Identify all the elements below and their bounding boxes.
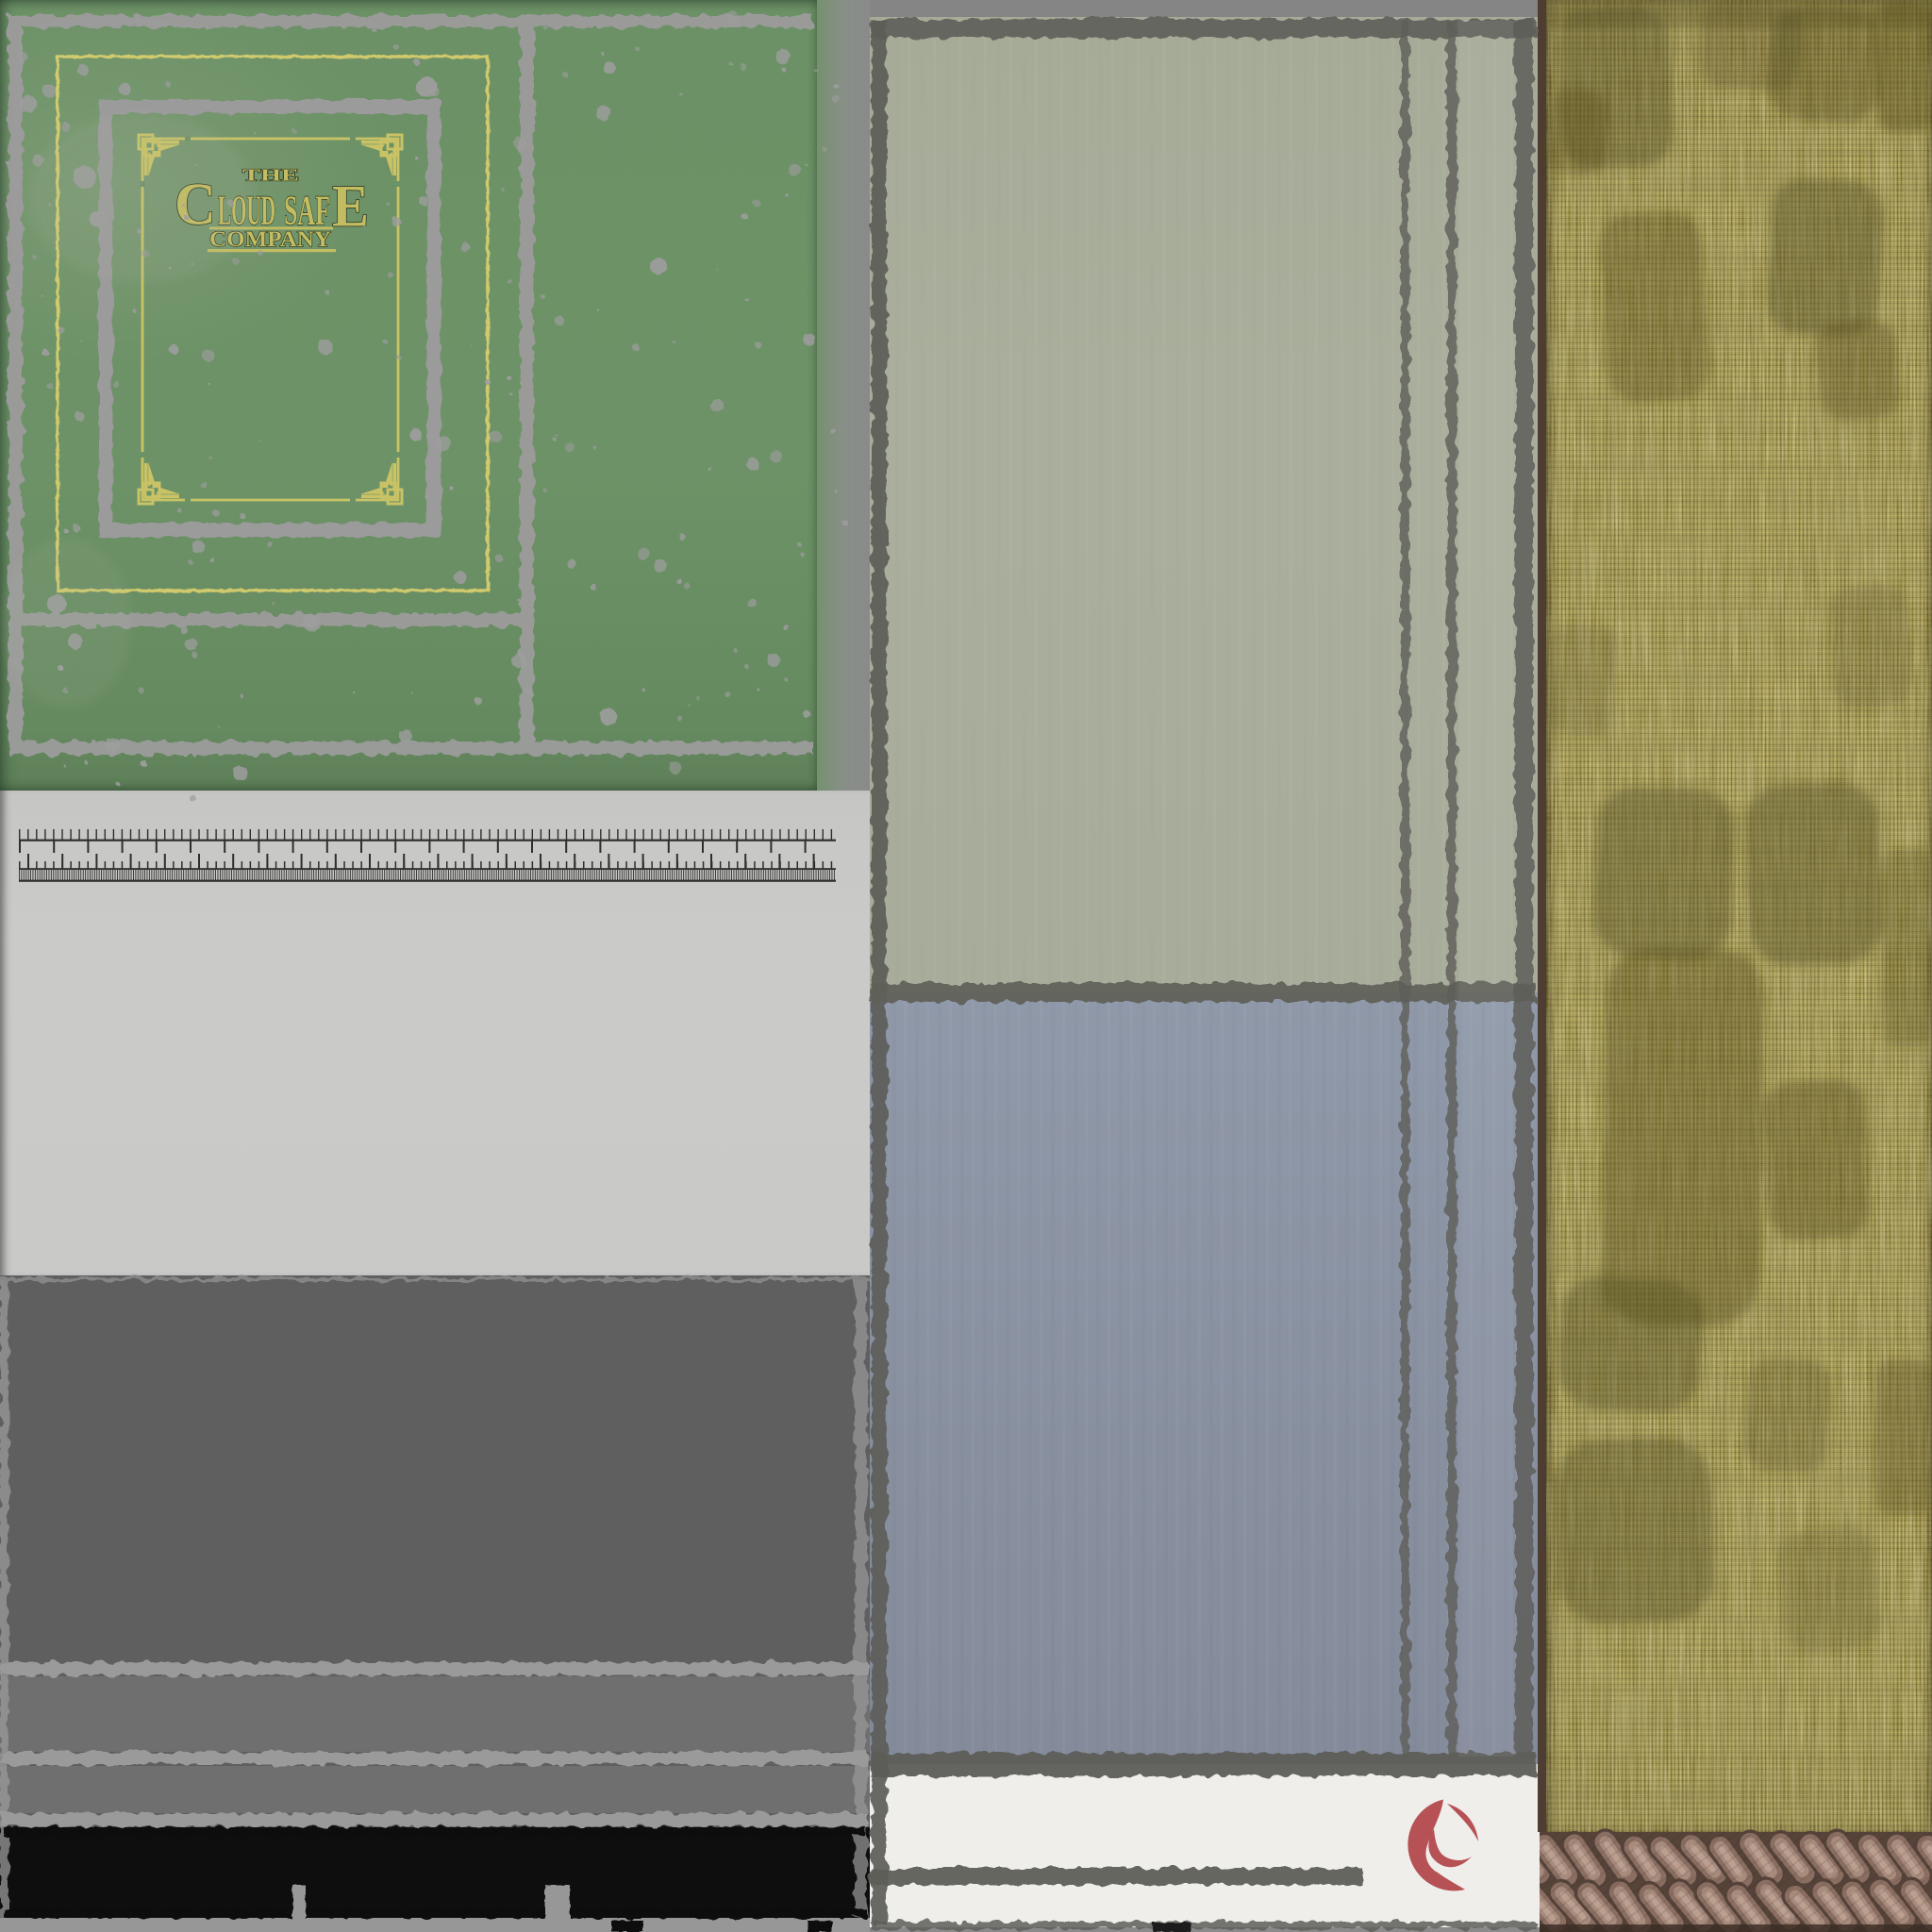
svg-text:E: E (332, 173, 369, 240)
